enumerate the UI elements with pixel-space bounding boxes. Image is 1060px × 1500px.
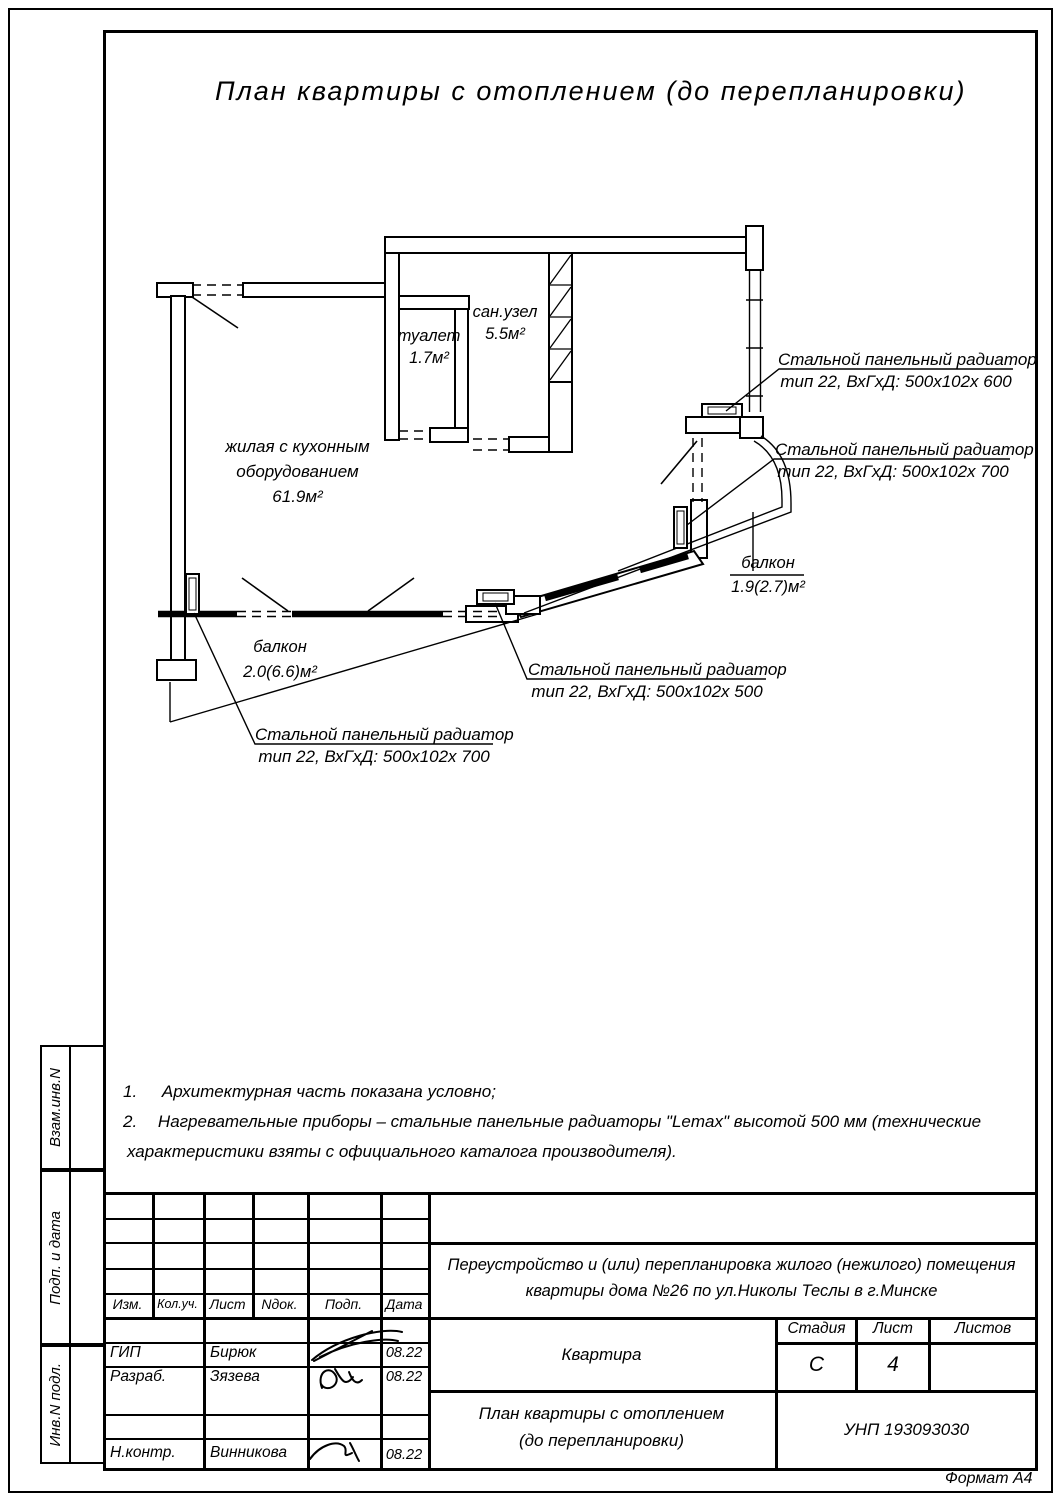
doc-title-line1: План квартиры с отоплением [428,1404,775,1424]
staff-date-nkontr: 08.22 [380,1447,428,1463]
room-label-toilet: туалет 1.7м² [396,325,462,369]
format-label: Формат А4 [945,1470,1033,1488]
room-name: сан.узел [468,301,542,323]
room-name-line2: оборудованием [195,459,400,484]
page-title: План квартиры с отоплением (до переплани… [215,76,915,107]
titleblock-line [307,1192,310,1468]
callout-line1: Стальной панельный радиатор [778,350,1014,369]
balcony-right-label: балкон 1.9(2.7)м² [726,553,810,598]
room-area: 1.7м² [396,347,462,369]
titleblock-line [428,1192,431,1468]
doc-title-line2: (до перепланировки) [428,1431,775,1451]
note-2: 2. Нагревательные приборы – стальные пан… [123,1112,981,1132]
titleblock-line [380,1192,383,1468]
balcony-name: балкон [230,635,330,660]
staff-name-razrab: Зязева [210,1368,260,1386]
note-number: 2. [123,1112,137,1131]
col-header-koluch: Кол.уч. [152,1297,203,1311]
side-strip-text: Взам.инв.N [47,1068,64,1147]
col-header-podp: Подп. [307,1296,380,1312]
project-title-line2: квартиры дома №26 по ул.Николы Теслы в г… [433,1282,1030,1301]
callout-line2: тип 22, ВхГхД: 500х102х 600 [778,372,1014,391]
callout-line2: тип 22, ВхГхД: 500х102х 700 [775,462,1011,481]
side-strip-text: Инв.N подл. [47,1363,64,1447]
col-header-data: Дата [380,1296,428,1312]
staff-role-nkontr: Н.контр. [110,1444,176,1462]
note-text: Архитектурная часть показана условно; [162,1082,496,1101]
titleblock-line [203,1192,206,1468]
side-strip-label: Инв.N подл. [42,1347,71,1462]
staff-name-nkontr: Винникова [210,1444,287,1462]
room-label-living: жилая с кухонным оборудованием 61.9м² [195,434,400,509]
note-2-continued: характеристики взяты с официального ката… [127,1142,677,1162]
titleblock-line [775,1317,778,1468]
unp-number: УНП 193093030 [778,1420,1035,1440]
titleblock-line [428,1390,1035,1393]
callout-line1: Стальной панельный радиатор [255,725,493,744]
room-label-bathroom: сан.узел 5.5м² [468,301,542,345]
stage-label: Стадия [778,1320,855,1338]
sheets-label: Листов [931,1320,1035,1338]
sheet-value: 4 [858,1353,928,1377]
staff-role-gip: ГИП [110,1344,141,1362]
col-header-ndok: Nдок. [252,1296,307,1312]
room-area: 61.9м² [195,484,400,509]
signature-nkontr [310,1443,359,1461]
side-strip-cell-podp: Подп. и дата [40,1170,105,1345]
note-text: характеристики взяты с официального ката… [127,1142,677,1161]
callout-line2: тип 22, ВхГхД: 500х102х 700 [255,747,493,766]
drawing-sheet: План квартиры с отоплением (до переплани… [0,0,1060,1500]
titleblock-line [103,1192,1035,1195]
staff-date-gip: 08.22 [380,1345,428,1361]
right-window [746,270,763,412]
note-number: 1. [123,1082,137,1101]
balcony-name: балкон [726,553,810,574]
object-name: Квартира [428,1345,775,1365]
stage-value: С [778,1353,855,1377]
titleblock-line [775,1342,1035,1345]
side-strip-label: Взам.инв.N [42,1047,71,1168]
staff-name-gip: Бирюк [210,1344,256,1362]
radiator-callout-4: Стальной панельный радиатор тип 22, ВхГх… [255,725,493,766]
radiator-callout-1: Стальной панельный радиатор тип 22, ВхГх… [778,350,1014,391]
callout-line2: тип 22, ВхГхД: 500х102х 500 [528,682,766,701]
sheet-label: Лист [858,1320,928,1338]
balcony-area: 2.0(6.6)м² [230,660,330,685]
side-strip-text: Подп. и дата [47,1211,64,1305]
col-header-list: Лист [203,1296,252,1312]
staff-date-razrab: 08.22 [380,1369,428,1385]
side-strip-cell-inv: Инв.N подл. [40,1345,105,1464]
balcony-left-label: балкон 2.0(6.6)м² [230,635,330,685]
titleblock-line [428,1242,1035,1245]
room-area: 5.5м² [468,323,542,345]
col-header-izm: Изм. [103,1296,152,1312]
floor-plan-svg [0,0,1060,1500]
radiator-callout-2: Стальной панельный радиатор тип 22, ВхГх… [775,440,1011,481]
note-text: Нагревательные приборы – стальные панель… [158,1112,981,1131]
staff-role-razrab: Разраб. [110,1368,166,1386]
signature-razrab [321,1369,362,1388]
balcony-area: 1.9(2.7)м² [726,577,810,598]
radiator-callout-3: Стальной панельный радиатор тип 22, ВхГх… [528,660,766,701]
callout-line1: Стальной панельный радиатор [775,440,1011,459]
room-name-line1: жилая с кухонным [195,434,400,459]
callout-line1: Стальной панельный радиатор [528,660,766,679]
room-name: туалет [396,325,462,347]
note-1: 1. Архитектурная часть показана условно; [123,1082,496,1102]
project-title-line1: Переустройство и (или) перепланировка жи… [433,1256,1030,1275]
side-strip-label: Подп. и дата [42,1172,71,1343]
side-strip-cell-vzam: Взам.инв.N [40,1045,105,1170]
